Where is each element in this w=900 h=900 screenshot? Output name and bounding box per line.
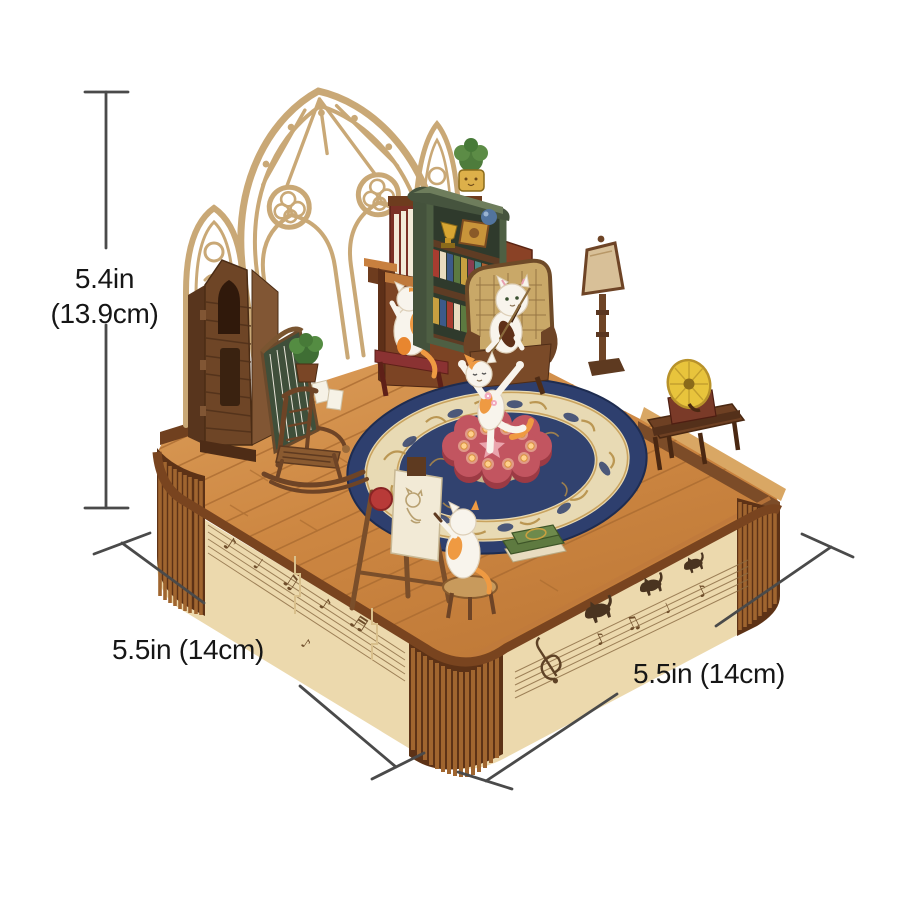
easel-clamp <box>407 457 426 476</box>
height-centimeters: (13.9cm) <box>22 296 187 331</box>
width-left-dimension-label: 5.5in (14cm) <box>112 634 264 666</box>
pillar-arch-recess <box>218 280 240 334</box>
height-inches: 5.4in <box>22 261 187 296</box>
width-right-dimension-label: 5.5in (14cm) <box>633 658 785 690</box>
pillar-lower-recess <box>220 348 240 406</box>
blue-orb <box>481 209 497 225</box>
product-dimension-photo: ♪ ♩ ♫ ♪ ♬ ♪ ♪ ♫ ♩ ♪ <box>0 0 900 900</box>
gramophone <box>663 356 716 424</box>
floor-lamp <box>583 236 625 376</box>
height-dimension-label: 5.4in (13.9cm) <box>22 261 187 331</box>
music-box-illustration: ♪ ♩ ♫ ♪ ♬ ♪ ♪ ♫ ♩ ♪ <box>0 0 900 900</box>
bookcase-plant <box>454 138 488 191</box>
red-beret <box>370 488 392 510</box>
picture-frame <box>459 220 488 247</box>
